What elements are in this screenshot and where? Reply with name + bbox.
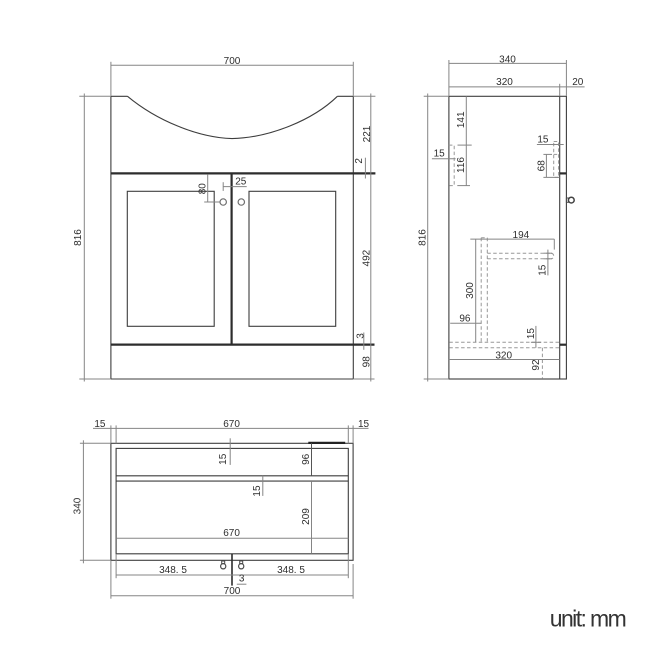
svg-text:3: 3 [355, 333, 366, 339]
svg-text:209: 209 [301, 508, 312, 525]
svg-text:670: 670 [223, 528, 240, 539]
svg-text:221: 221 [362, 125, 373, 142]
svg-text:141: 141 [456, 111, 467, 128]
svg-text:670: 670 [223, 419, 240, 430]
svg-text:96: 96 [301, 453, 312, 465]
svg-text:816: 816 [418, 229, 429, 246]
svg-text:194: 194 [513, 230, 530, 241]
svg-text:15: 15 [252, 485, 263, 497]
svg-text:348. 5: 348. 5 [159, 565, 187, 576]
svg-text:340: 340 [499, 55, 516, 66]
svg-text:15: 15 [434, 149, 446, 160]
svg-text:15: 15 [537, 135, 549, 146]
svg-text:320: 320 [496, 77, 513, 88]
svg-text:15: 15 [94, 419, 106, 430]
svg-text:15: 15 [358, 419, 370, 430]
svg-text:116: 116 [456, 157, 467, 173]
svg-text:15: 15 [538, 264, 549, 276]
svg-text:2: 2 [354, 158, 365, 164]
svg-text:816: 816 [73, 229, 84, 246]
svg-text:3: 3 [239, 574, 245, 585]
svg-text:15: 15 [526, 328, 537, 340]
svg-text:320: 320 [495, 351, 512, 362]
svg-text:92: 92 [531, 359, 542, 371]
svg-text:20: 20 [572, 77, 584, 88]
svg-text:340: 340 [72, 497, 83, 514]
svg-text:700: 700 [224, 586, 241, 597]
svg-text:492: 492 [362, 249, 373, 266]
svg-text:68: 68 [536, 160, 547, 172]
svg-text:25: 25 [235, 176, 247, 187]
svg-text:96: 96 [459, 313, 471, 324]
svg-text:300: 300 [465, 282, 476, 299]
svg-text:348. 5: 348. 5 [277, 565, 305, 576]
svg-text:15: 15 [218, 453, 229, 465]
svg-text:80: 80 [198, 183, 209, 195]
svg-text:unit: mm: unit: mm [550, 606, 626, 632]
svg-text:98: 98 [362, 356, 373, 368]
svg-text:700: 700 [224, 56, 241, 67]
